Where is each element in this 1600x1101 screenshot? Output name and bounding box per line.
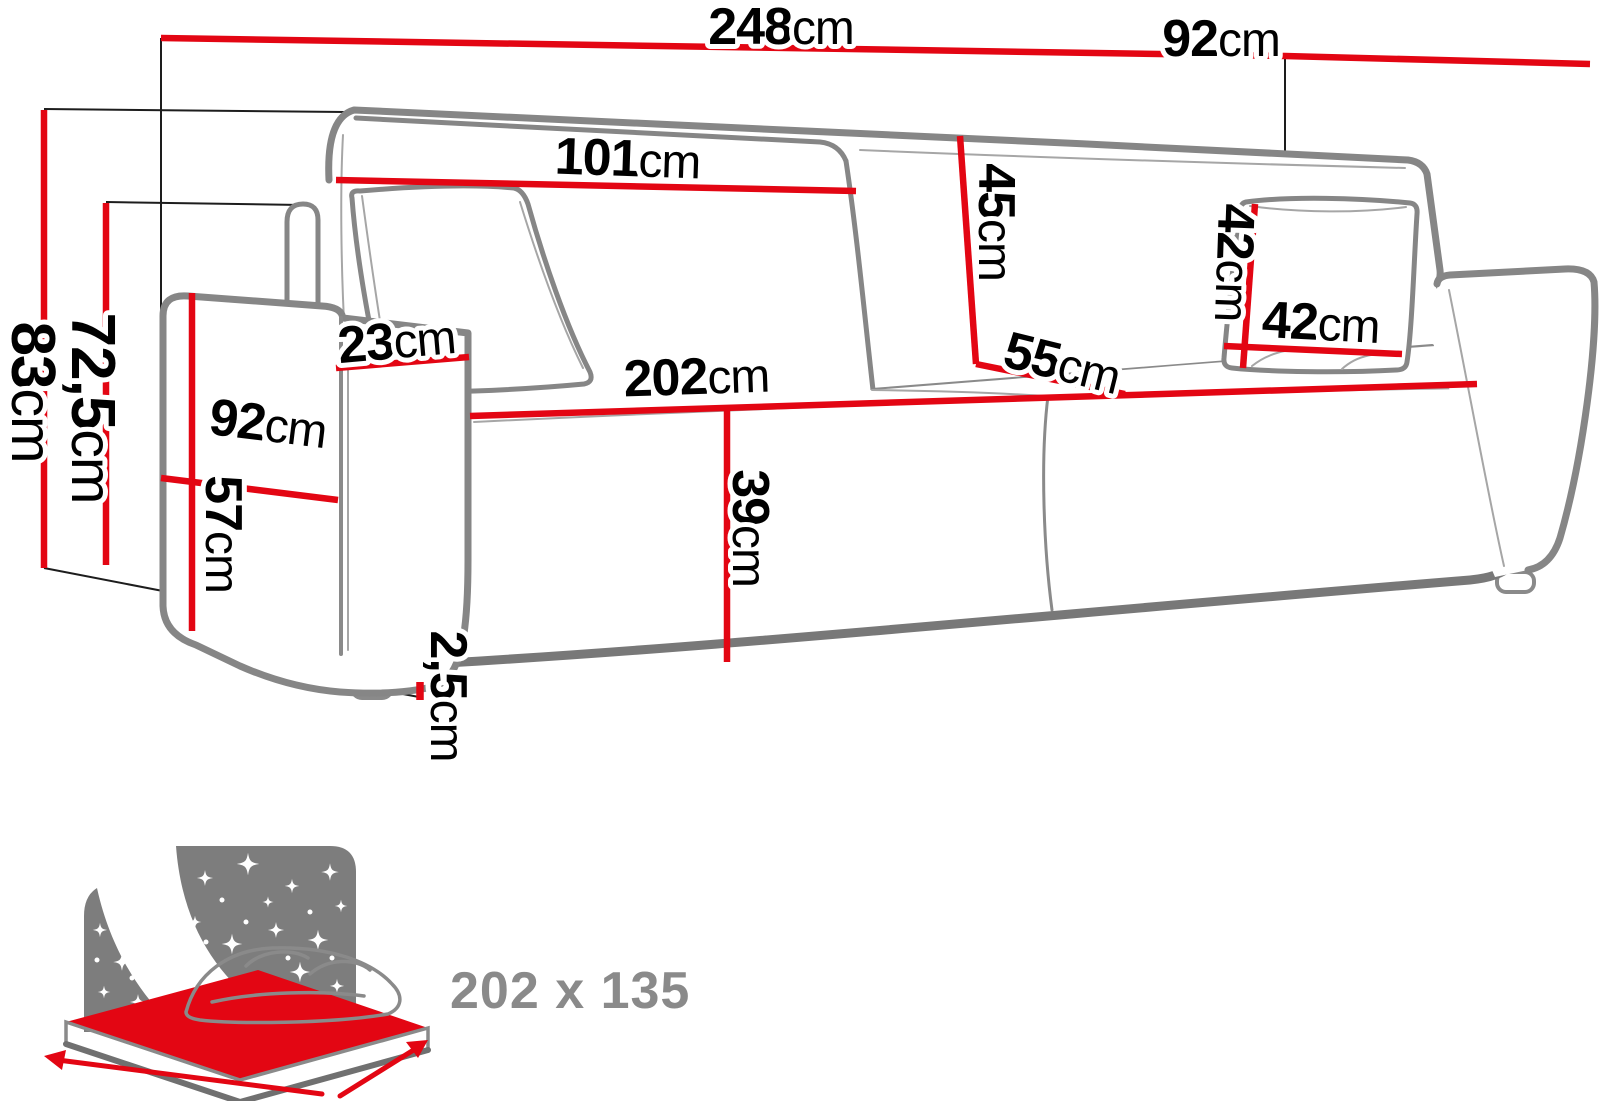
label-total-depth: 92cm bbox=[1162, 10, 1280, 68]
label-pillow-width: 42cm bbox=[1261, 291, 1381, 355]
dimension-diagram: 248cm 92cm 101cm 45cm 42cm 42cm 55cm 23c… bbox=[0, 0, 1600, 1101]
label-armrest-top-width: 23cm bbox=[335, 307, 457, 375]
sleeping-area-size: 202 x 135 bbox=[450, 962, 690, 1020]
label-seat-width: 202cm bbox=[623, 345, 770, 408]
label-pillow-height: 42cm bbox=[1203, 203, 1265, 323]
back-left-post bbox=[287, 204, 318, 302]
label-leg-clearance: 2,5cm bbox=[419, 630, 477, 761]
label-back-cushion-height: 45cm bbox=[967, 163, 1025, 281]
label-seat-height: 39cm bbox=[721, 469, 779, 587]
label-total-width: 248cm bbox=[708, 0, 854, 56]
label-back-cushion-width: 101cm bbox=[554, 127, 701, 190]
line-total-width-depth bbox=[161, 38, 1590, 64]
label-back-height: 72,5cm bbox=[58, 313, 127, 504]
sleeping-function-icon: 202 x 135 bbox=[44, 846, 690, 1101]
label-armrest-height: 57cm bbox=[194, 475, 252, 593]
label-total-height: 83cm bbox=[0, 322, 67, 463]
